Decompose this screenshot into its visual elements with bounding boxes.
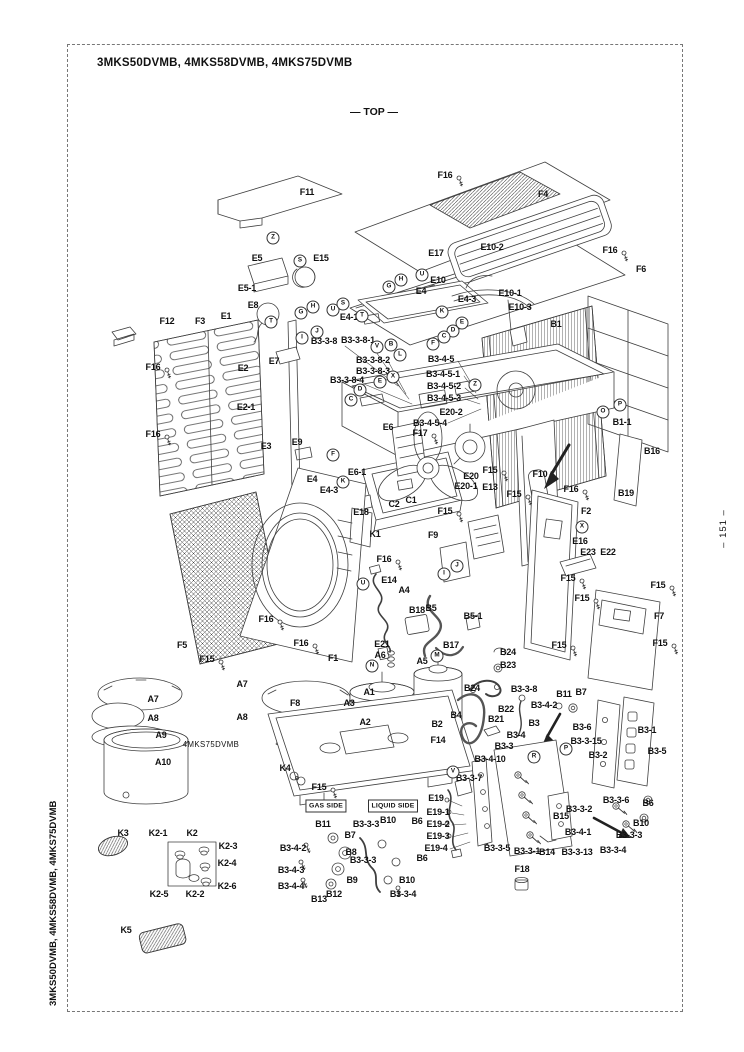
part-label: E22 <box>600 547 615 557</box>
part-label: K2-5 <box>150 889 169 899</box>
part-label: E5-1 <box>238 283 256 293</box>
connector-callout: X <box>387 371 400 384</box>
part-label: F14 <box>431 735 446 745</box>
part-label: B3-3-13 <box>561 847 592 857</box>
part-label: F5 <box>177 640 187 650</box>
part-label: B3-3-3 <box>616 830 642 840</box>
part-label: B18 <box>409 605 425 615</box>
impeller-e15 <box>293 267 315 287</box>
connector-callout: T <box>265 316 278 329</box>
screw-icon <box>217 659 228 670</box>
connector-callout: P <box>614 399 627 412</box>
part-label: F12 <box>160 316 175 326</box>
part-label: B3-4-3 <box>278 865 304 875</box>
page-number: – 151 – <box>718 509 729 548</box>
connector-callout: H <box>395 274 408 287</box>
connector-callout: K <box>337 476 350 489</box>
part-label: K1 <box>369 529 380 539</box>
part-label: B3-3-3 <box>353 819 379 829</box>
liquid-side-fittings <box>360 838 404 896</box>
connector-callout: G <box>383 281 396 294</box>
pad-k5 <box>138 923 187 954</box>
part-label: C2 <box>388 499 399 509</box>
part-label: F15 <box>507 489 522 499</box>
part-label: F15 <box>651 580 666 590</box>
part-label: E4 <box>307 474 318 484</box>
part-label: B3-3-5 <box>484 843 510 853</box>
connector-callout: H <box>307 301 320 314</box>
connector-callout: S <box>337 298 350 311</box>
fitting-a6 <box>388 651 395 667</box>
part-label: A3 <box>343 698 354 708</box>
part-label: E19-2 <box>426 819 449 829</box>
connector-callout: J <box>451 560 464 573</box>
screw-icon <box>620 250 631 261</box>
part-label: E5 <box>252 253 263 263</box>
connector-callout: R <box>528 751 541 764</box>
part-label: F16 <box>294 638 309 648</box>
part-label: B9 <box>346 875 357 885</box>
part-label: B3-3-15 <box>570 736 601 746</box>
part-label: F16 <box>146 362 161 372</box>
part-label: A7 <box>147 694 158 704</box>
part-label: B3-3-4 <box>390 889 416 899</box>
part-label: E2-1 <box>237 402 255 412</box>
part-label: E14 <box>381 575 396 585</box>
parts-bag-k2 <box>168 842 216 886</box>
part-label: K2-4 <box>218 858 237 868</box>
part-label: E4-3 <box>320 485 338 495</box>
part-label: F15 <box>552 640 567 650</box>
part-label: B11 <box>315 819 330 829</box>
part-label: B3 <box>528 718 539 728</box>
part-label: K4 <box>279 763 290 773</box>
part-label: B3-3-1 <box>514 846 540 856</box>
part-label: C1 <box>405 495 416 505</box>
part-label: A1 <box>363 687 374 697</box>
connector-callout: Z <box>267 232 280 245</box>
part-label: B14 <box>539 847 555 857</box>
part-label: B12 <box>326 889 342 899</box>
part-label: F8 <box>290 698 300 708</box>
exploded-diagram-art <box>0 0 744 1052</box>
part-label: E4-3 <box>458 294 476 304</box>
part-label: E9 <box>292 437 303 447</box>
part-label: F10 <box>533 469 548 479</box>
part-label: F16 <box>603 245 618 255</box>
part-label: B3-3-4 <box>600 845 626 855</box>
part-label: A9 <box>155 730 166 740</box>
part-label: F18 <box>515 864 530 874</box>
part-label: B3-6 <box>573 722 592 732</box>
part-label: E18 <box>353 507 368 517</box>
part-label: B6 <box>411 816 422 826</box>
part-label: E19 <box>428 793 443 803</box>
connector-callout: O <box>597 406 610 419</box>
part-label: K2-3 <box>219 841 238 851</box>
bracket-f12 <box>112 327 136 346</box>
part-label: F11 <box>300 187 314 197</box>
connector-callout: L <box>394 349 407 362</box>
part-label: A6 <box>374 650 385 660</box>
part-label: B10 <box>380 815 396 825</box>
part-label: F15 <box>561 573 576 583</box>
part-label: E8 <box>248 300 259 310</box>
part-label: E10-2 <box>480 242 503 252</box>
part-label: F15 <box>200 654 215 664</box>
part-label: K5 <box>120 925 131 935</box>
part-label: E13 <box>482 482 497 492</box>
screw-icon <box>668 585 679 596</box>
connector-callout: N <box>366 660 379 673</box>
part-label: B3-3-8 <box>511 684 537 694</box>
part-label: F16 <box>259 614 274 624</box>
part-label: B5 <box>425 603 436 613</box>
part-label: A8 <box>236 712 247 722</box>
part-label: F16 <box>564 484 579 494</box>
connector-callout: U <box>416 269 429 282</box>
accumulator-a10 <box>92 678 188 804</box>
part-label: E7 <box>269 356 280 366</box>
catalog-page: 3MKS50DVMB, 4MKS58DVMB, 4MKS75DVMB — TOP… <box>0 0 744 1052</box>
screw-icon <box>455 511 466 522</box>
part-label: B3-4-1 <box>565 827 591 837</box>
part-label: B3-3-7 <box>456 773 482 783</box>
part-label: B7 <box>575 687 586 697</box>
connector-callout: J <box>311 326 324 339</box>
part-label: GAS SIDE <box>305 800 346 813</box>
part-label: K2-2 <box>186 889 205 899</box>
page-title: 3MKS50DVMB, 4MKS58DVMB, 4MKS75DVMB <box>97 57 352 69</box>
part-label: E23 <box>580 547 595 557</box>
part-label: B1 <box>550 319 561 329</box>
connector-callout: P <box>560 743 573 756</box>
part-label: A8 <box>147 713 158 723</box>
part-label: F17 <box>413 428 428 438</box>
part-label: B3-2 <box>589 750 608 760</box>
part-label: B3-3 <box>495 741 514 751</box>
part-label: E16 <box>572 536 587 546</box>
part-label: B5-1 <box>464 611 483 621</box>
part-label: E10-3 <box>508 302 531 312</box>
part-label: K2-6 <box>218 881 237 891</box>
part-label: K3 <box>117 828 128 838</box>
part-label: B10 <box>633 818 649 828</box>
part-label: B3-1 <box>638 725 657 735</box>
connector-callout: U <box>357 578 370 591</box>
connector-callout: S <box>294 255 307 268</box>
part-label: B6 <box>416 853 427 863</box>
part-label: E6-1 <box>348 467 366 477</box>
part-label: B3-5 <box>648 746 667 756</box>
part-label: E10-1 <box>498 288 521 298</box>
plate-b3-1 <box>617 697 654 786</box>
part-label: B3-3-8-1 <box>341 335 375 345</box>
part-label: B22 <box>498 704 514 714</box>
part-label: E10 <box>430 275 445 285</box>
part-label: F16 <box>146 429 161 439</box>
part-label: A4 <box>398 585 409 595</box>
part-label: F1 <box>328 653 338 663</box>
part-label: B3-4-2 <box>531 700 557 710</box>
connector-callout: E <box>374 376 387 389</box>
part-label: E19-3 <box>426 831 449 841</box>
part-label: B3-4-5-1 <box>426 369 460 379</box>
part-label: B3-3-3 <box>350 855 376 865</box>
part-label: B24 <box>500 647 516 657</box>
plate-b3-4-10 <box>472 758 492 846</box>
connector-callout: C <box>438 331 451 344</box>
frame-e1 <box>288 320 300 490</box>
part-label: E21 <box>374 639 389 649</box>
screw-icon <box>670 643 681 654</box>
part-label: E4 <box>416 286 427 296</box>
part-label: E3 <box>261 441 272 451</box>
connector-callout: V <box>447 766 460 779</box>
part-label: F15 <box>653 638 668 648</box>
part-label: B16 <box>644 446 660 456</box>
part-label: F2 <box>581 506 591 516</box>
connector-callout: Z <box>469 379 482 392</box>
part-label: B10 <box>399 875 415 885</box>
part-label: K2 <box>186 828 197 838</box>
connector-callout: K <box>436 306 449 319</box>
side-model-title: 3MKS50DVMB, 4MKS58DVMB, 4MKS75DVMB <box>48 801 59 1006</box>
part-label: B2 <box>431 719 442 729</box>
part-label: E19-4 <box>424 843 447 853</box>
part-label: B21 <box>488 714 504 724</box>
connector-callout: G <box>295 307 308 320</box>
part-label: F3 <box>195 316 205 326</box>
part-label: F4 <box>538 189 548 199</box>
part-label: B3-4-5-3 <box>427 393 461 403</box>
part-label: B11 <box>556 689 571 699</box>
part-label: F15 <box>438 506 453 516</box>
connector-callout: C <box>345 394 358 407</box>
part-label: B3-4-5 <box>428 354 454 364</box>
part-label: E2 <box>238 363 249 373</box>
connector-callout: F <box>327 449 340 462</box>
gas-side-fittings <box>297 833 351 889</box>
screw-icon <box>581 489 592 500</box>
part-label: E20-2 <box>439 407 462 417</box>
screw-icon <box>578 578 589 589</box>
screw-icon <box>455 175 466 186</box>
part-label: B6 <box>642 798 653 808</box>
part-label: B3-4-2 <box>280 843 306 853</box>
part-label: B24 <box>464 683 480 693</box>
part-label: B3-4-5-4 <box>413 418 447 428</box>
part-label: K2-1 <box>149 828 168 838</box>
part-label: E1 <box>221 311 232 321</box>
connector-callout: F <box>427 338 440 351</box>
part-label: E6 <box>383 422 394 432</box>
screw-icon <box>394 559 405 570</box>
part-label: LIQUID SIDE <box>368 800 418 813</box>
part-label: F15 <box>312 782 327 792</box>
part-label: B3-3-6 <box>603 795 629 805</box>
orientation-label: — TOP — <box>350 106 398 118</box>
panel-f11 <box>218 176 342 221</box>
part-label: B4 <box>450 710 461 720</box>
part-label: B13 <box>311 894 327 904</box>
part-label: E15 <box>313 253 328 263</box>
connector-callout: I <box>296 332 309 345</box>
part-label: B17 <box>443 640 459 650</box>
part-label: F15 <box>483 465 498 475</box>
connector-callout: I <box>438 568 451 581</box>
part-label: 4MKS75DVMB <box>183 740 239 750</box>
part-label: B3-4-5-2 <box>427 381 461 391</box>
part-label: A5 <box>416 656 427 666</box>
connector-callout: T <box>356 310 369 323</box>
part-label: E19-1 <box>426 807 449 817</box>
part-label: B7 <box>344 830 355 840</box>
part-label: F6 <box>636 264 646 274</box>
connector-callout: V <box>371 341 384 354</box>
part-label: A10 <box>155 757 171 767</box>
part-label: F15 <box>575 593 590 603</box>
part-label: B3-3-8-2 <box>356 355 390 365</box>
part-label: A7 <box>236 679 247 689</box>
part-label: F16 <box>377 554 392 564</box>
connector-callout: M <box>431 650 444 663</box>
part-label: F16 <box>438 170 453 180</box>
part-label: E20 <box>463 471 478 481</box>
part-label: B23 <box>500 660 516 670</box>
part-label: B3-4-4 <box>278 881 304 891</box>
part-label: B19 <box>618 488 634 498</box>
part-label: F9 <box>428 530 438 540</box>
part-label: F7 <box>654 611 664 621</box>
part-label: E20-1 <box>454 481 477 491</box>
connector-callout: X <box>576 521 589 534</box>
part-label: A2 <box>359 717 370 727</box>
part-f18 <box>515 877 528 890</box>
part-label: B15 <box>553 811 569 821</box>
part-label: B3-3-2 <box>566 804 592 814</box>
part-label: B3-4 <box>507 730 526 740</box>
part-label: B1-1 <box>613 417 632 427</box>
part-label: B3-4-10 <box>474 754 505 764</box>
box-e13 <box>468 515 504 559</box>
part-label: E17 <box>428 248 443 258</box>
cover-b18 <box>405 614 430 635</box>
